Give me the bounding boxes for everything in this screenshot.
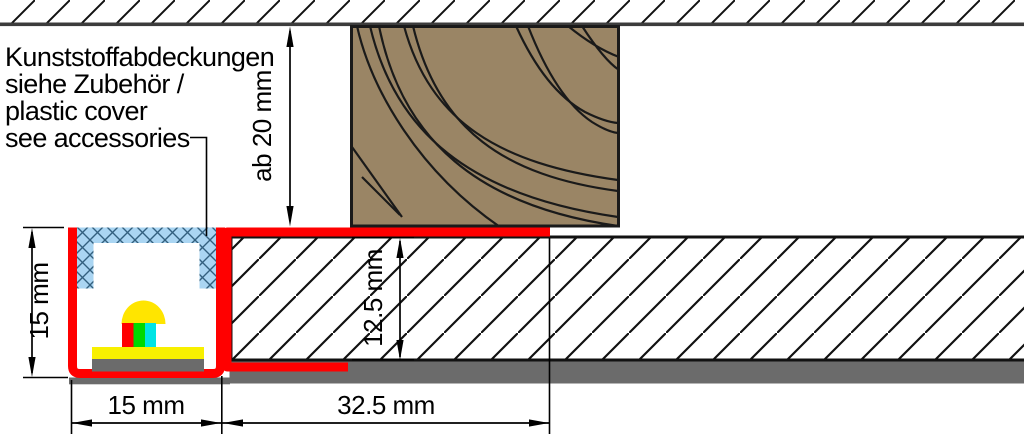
- plaster-layer-right: [230, 362, 1024, 384]
- drywall-panel: [231, 237, 1024, 360]
- dimension-profile-height: 15 mm: [23, 228, 68, 378]
- dimension-flange-width-label: 32.5 mm: [337, 390, 435, 420]
- plastic-cover-left-tab: [77, 243, 94, 289]
- wood-block-body: [352, 27, 619, 227]
- annotation-leader-line: [190, 138, 207, 237]
- dimension-profile-width-label: 15 mm: [108, 390, 185, 420]
- led-chip-green: [134, 323, 146, 347]
- cross-section-svg: Kunststoffabdeckungen siehe Zubehör / pl…: [0, 0, 1024, 445]
- plastic-cover-right-tab: [200, 243, 217, 289]
- led-pcb-strip: [92, 347, 204, 359]
- annotation-line-3: plastic cover: [5, 96, 148, 126]
- annotation: Kunststoffabdeckungen siehe Zubehör / pl…: [5, 42, 274, 236]
- plastic-cover-top: [77, 228, 216, 244]
- led-chip-red: [122, 323, 134, 347]
- led-chip-cyan: [145, 323, 156, 347]
- led-dome: [122, 300, 166, 324]
- plaster-layer-under-profile: [69, 378, 230, 385]
- annotation-line-2: siehe Zubehör /: [5, 69, 185, 99]
- ceiling-band-hatch: [0, 0, 1024, 23]
- led-strip-assembly: [92, 300, 204, 371]
- plastic-cover: [77, 228, 216, 289]
- dimension-profile-height-label: 15 mm: [24, 263, 54, 340]
- wood-block: [352, 26, 620, 227]
- ceiling-hatch-band: [0, 0, 1024, 26]
- led-base-plate: [92, 359, 204, 372]
- annotation-line-1: Kunststoffabdeckungen: [5, 42, 274, 72]
- dimension-recess-height-label: ab 20 mm: [247, 70, 277, 182]
- technical-drawing: Kunststoffabdeckungen siehe Zubehör / pl…: [0, 0, 1024, 445]
- drywall-panel-hatch: [233, 239, 1024, 359]
- dimension-panel-thickness-label: 12.5 mm: [358, 249, 388, 347]
- annotation-line-4: see accessories: [5, 123, 190, 153]
